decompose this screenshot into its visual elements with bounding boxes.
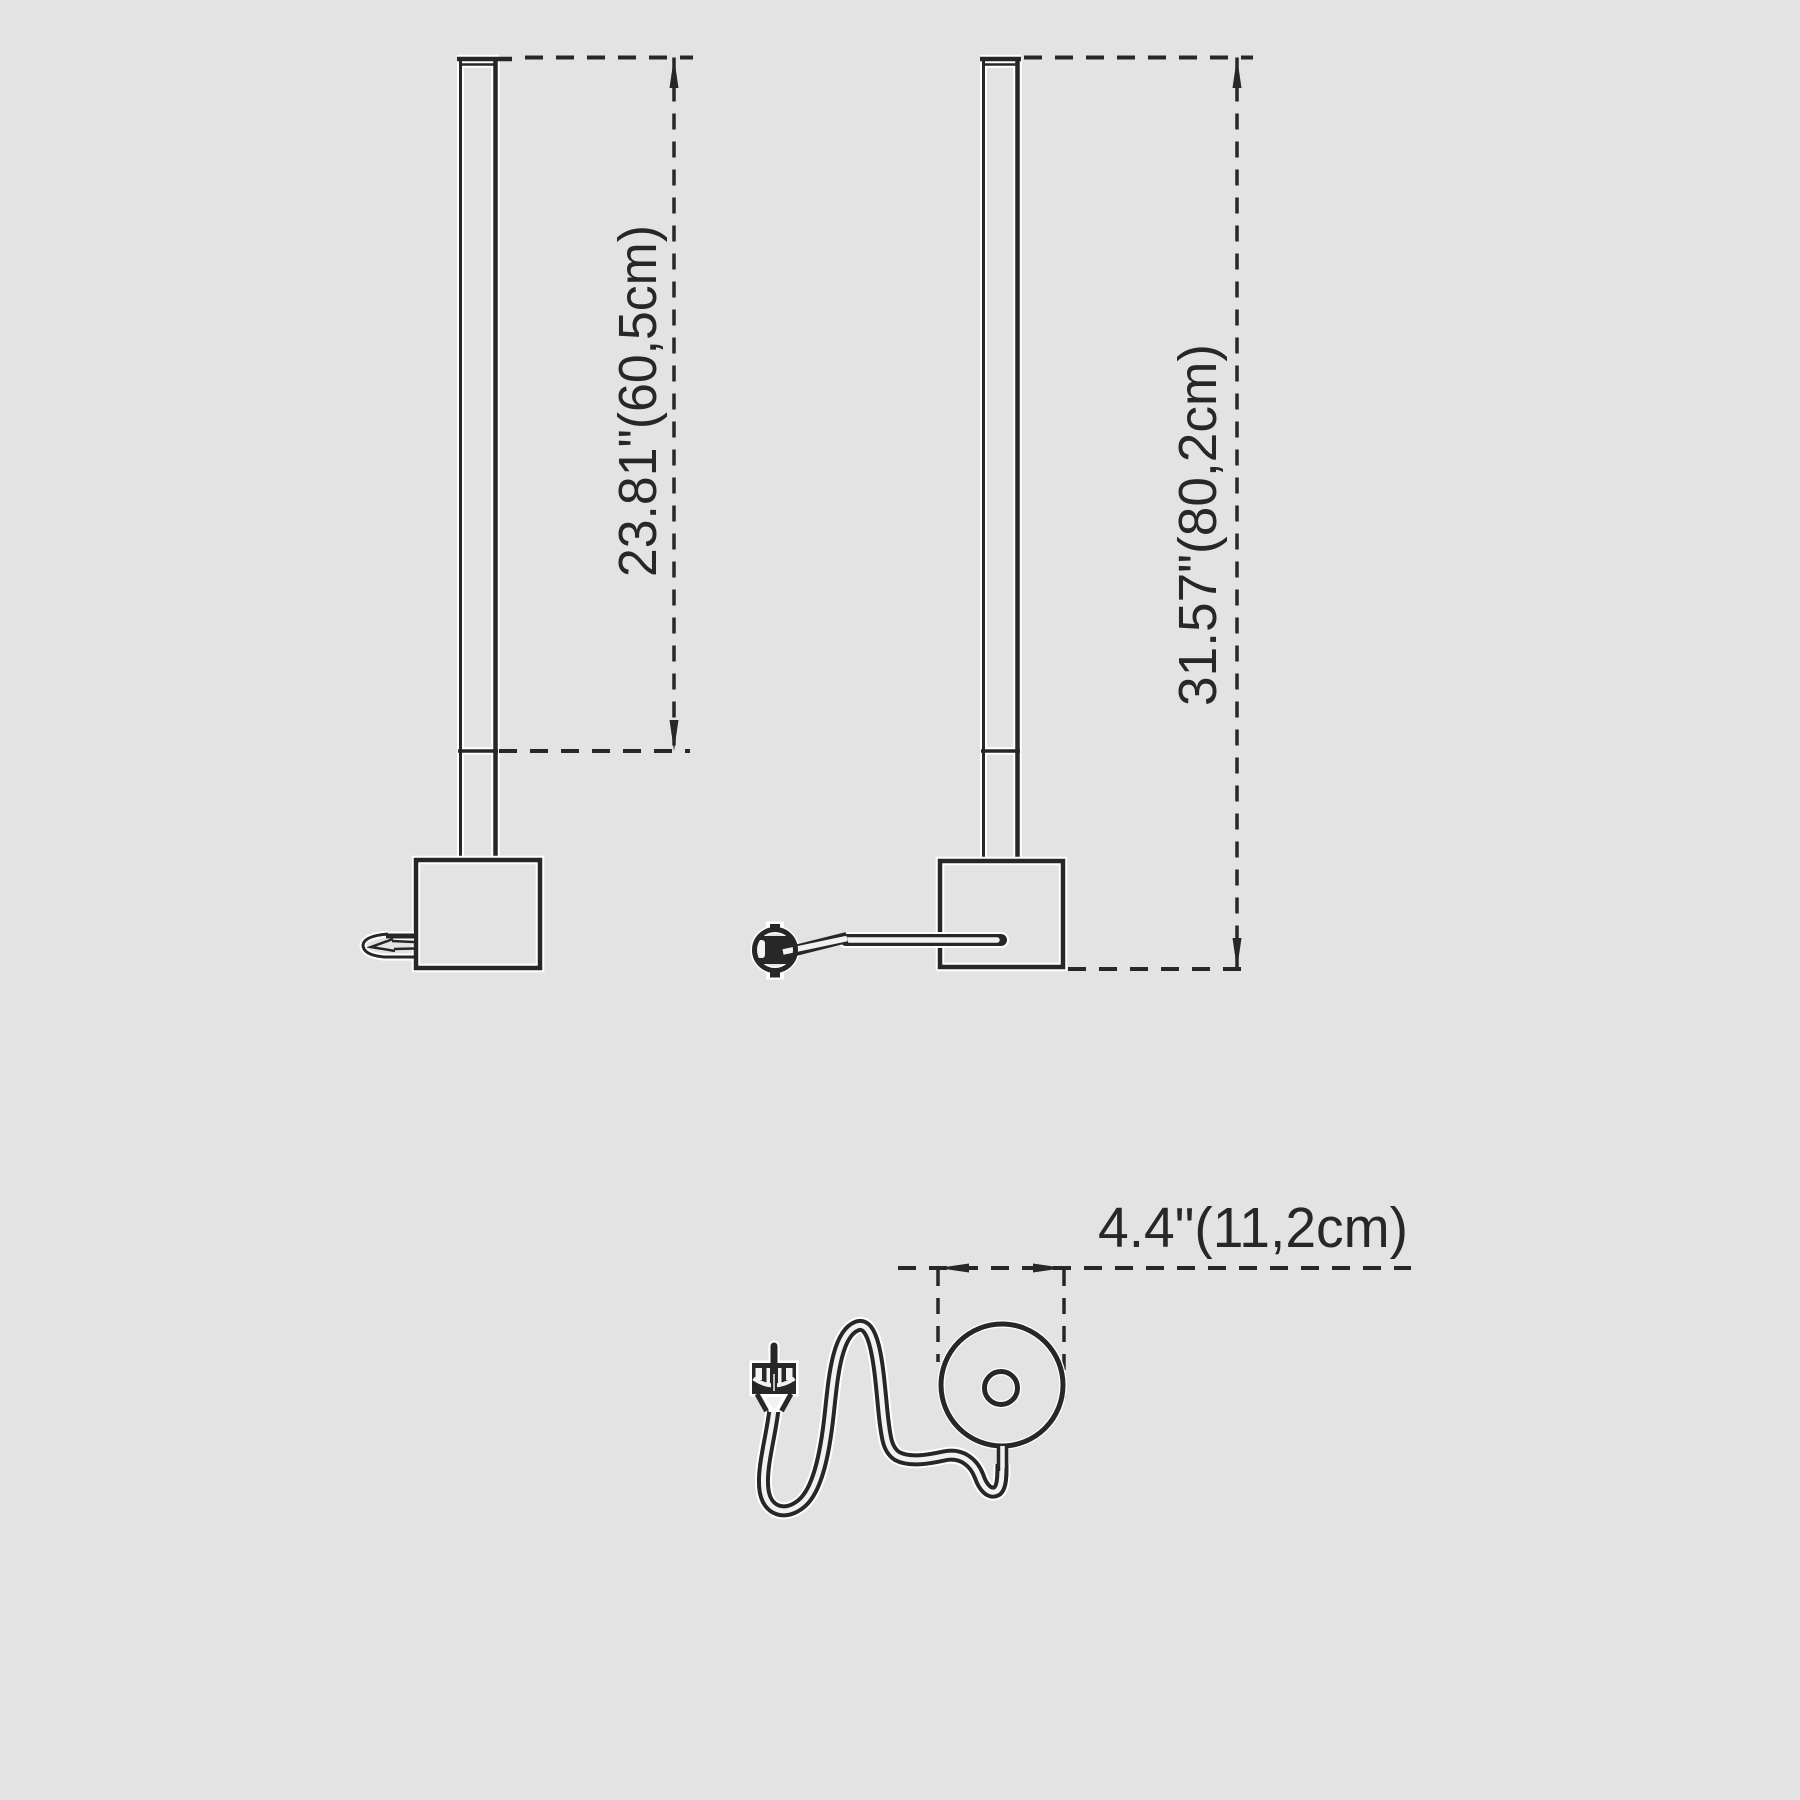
svg-text:4.4"(11,2cm): 4.4"(11,2cm)	[1098, 1196, 1408, 1260]
svg-text:23.81"(60,5cm): 23.81"(60,5cm)	[608, 225, 668, 577]
svg-text:31.57"(80,2cm): 31.57"(80,2cm)	[1168, 344, 1228, 706]
